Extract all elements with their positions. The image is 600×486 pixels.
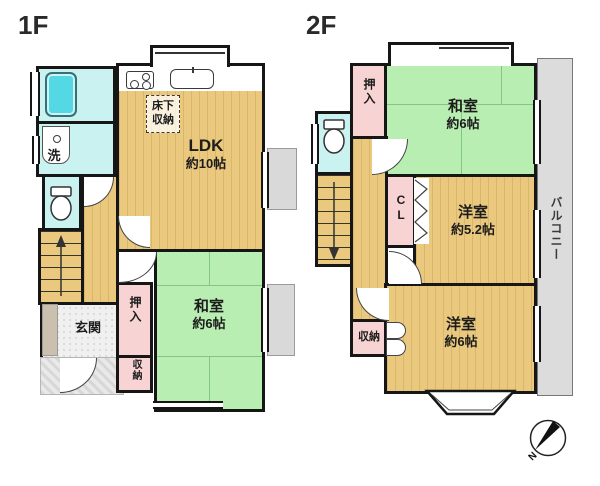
door-leaf (386, 322, 406, 339)
floor2-label: 2F (306, 10, 336, 41)
closet-cl-label: CL (394, 193, 408, 223)
door-arc (119, 252, 157, 283)
bay-box (267, 284, 295, 356)
kitchen-sink-icon (170, 69, 214, 89)
toilet-icon (321, 119, 347, 155)
floor1-label: 1F (18, 10, 48, 41)
washitsu-2f-label: 和室 約6帖 (418, 98, 508, 132)
window (153, 401, 223, 409)
bathtub-icon (45, 72, 77, 117)
window-bay-2f (388, 42, 514, 66)
underfloor-storage-label: 床下 収納 (146, 95, 180, 133)
balcony-label: バルコニー (548, 196, 565, 261)
window (30, 72, 40, 116)
western-52-label: 洋室 約5.2帖 (423, 204, 523, 238)
shuno-1f-label: 収納 (128, 359, 143, 381)
down-arrow-icon (326, 178, 342, 262)
window (533, 306, 541, 362)
shoe-cabinet (42, 304, 58, 356)
genkan-label: 玄関 (60, 320, 116, 336)
bay-box (267, 148, 297, 210)
shuno-2f-label: 収納 (352, 331, 386, 344)
window (311, 124, 319, 164)
bay-window-icon (415, 384, 525, 420)
window (32, 136, 40, 164)
window (533, 100, 541, 164)
floorplan-canvas: 1F 2F 床下 収納 (0, 0, 600, 486)
western-6-label: 洋室 約6帖 (416, 316, 506, 350)
window (261, 288, 269, 352)
kitchen-window-bay (150, 45, 230, 67)
stove-icon (126, 71, 154, 89)
window (533, 210, 541, 278)
up-arrow-icon (52, 234, 70, 300)
ldk-label: LDK 約10帖 (158, 136, 254, 172)
toilet-icon (48, 186, 74, 222)
compass-icon: N (524, 414, 572, 462)
oshiire-1f-label: 押入 (127, 296, 144, 324)
oshiire-2f-label: 押入 (361, 78, 378, 106)
window (261, 152, 269, 208)
washitsu-1f-label: 和室 約6帖 (164, 298, 254, 332)
door-leaf (386, 339, 406, 356)
laundry-label: 洗 (44, 148, 64, 164)
